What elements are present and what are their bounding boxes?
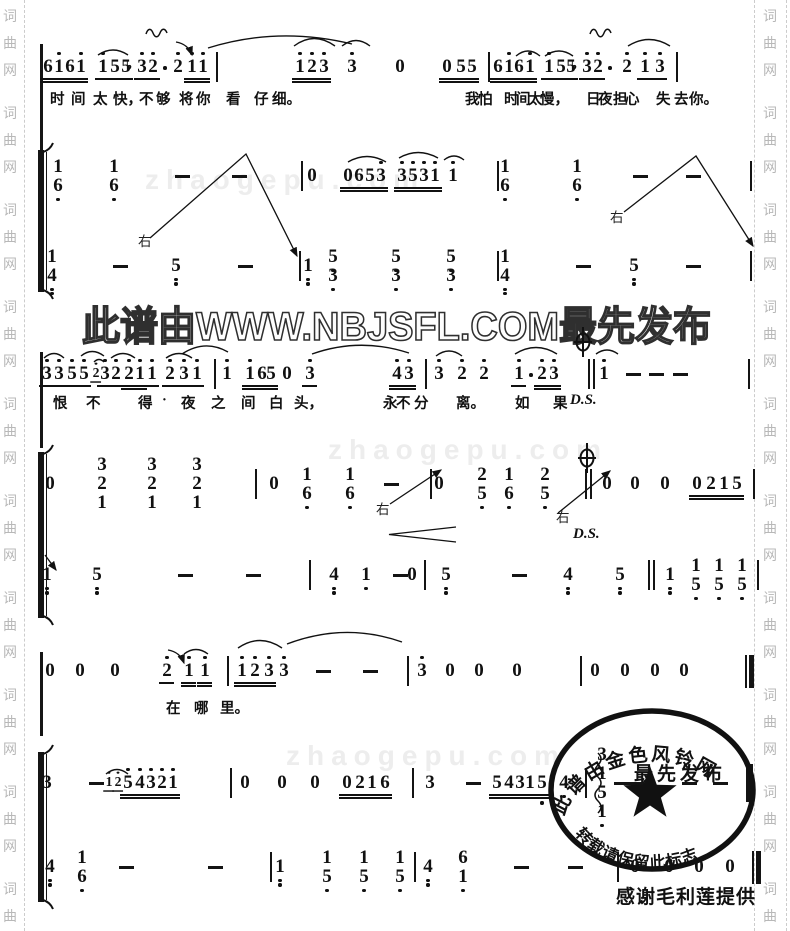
- lyric-text: 太: [93, 88, 108, 109]
- note: 3: [443, 260, 459, 306]
- octave-dot-high: [57, 52, 60, 55]
- note-digit: 1: [94, 493, 110, 512]
- note: 6: [569, 170, 585, 216]
- margin-char: 词: [3, 200, 17, 220]
- octave-dot-high: [57, 359, 60, 362]
- beam-underline: [144, 385, 159, 387]
- margin-char: 词: [763, 6, 777, 26]
- note-digit: 5: [711, 575, 727, 594]
- note-digit: 0: [442, 661, 458, 680]
- note-digit: 1: [144, 493, 160, 512]
- octave-dot-low: [48, 879, 51, 882]
- octave-dot-high: [437, 359, 440, 362]
- lyric-text: 看: [226, 88, 241, 109]
- barline: [227, 656, 229, 686]
- note: 3: [431, 358, 447, 404]
- note-digit: 3: [388, 266, 404, 285]
- note-digit: 5: [356, 867, 372, 886]
- octave-dot-high: [451, 161, 454, 164]
- note-digit: 6: [50, 176, 66, 195]
- note-digit: 3: [261, 661, 277, 680]
- octave-dot-high: [540, 359, 543, 362]
- note: 4: [326, 559, 342, 605]
- lyric-text: 仔: [254, 88, 269, 109]
- octave-dot-low: [503, 288, 506, 291]
- octave-dot-high: [127, 359, 130, 362]
- dash-rest: [686, 175, 701, 178]
- margin-char: 词: [763, 588, 777, 608]
- note: 1: [181, 655, 197, 701]
- note: 3: [414, 655, 430, 701]
- octave-dot-low: [618, 587, 621, 590]
- margin-char: 曲: [763, 324, 777, 344]
- margin-char: 网: [3, 836, 17, 856]
- margin-char: 曲: [3, 615, 17, 635]
- note: 1: [300, 250, 316, 296]
- note-digit: 3: [422, 773, 438, 792]
- margin-char: 曲: [763, 712, 777, 732]
- note: 6: [299, 478, 315, 524]
- octave-dot-low: [717, 597, 720, 600]
- note-digit: 5: [319, 867, 335, 886]
- dash-rest: [119, 866, 134, 869]
- note-digit: 4: [497, 266, 513, 285]
- beam-underline: [546, 388, 561, 390]
- final-barline: [745, 655, 747, 688]
- octave-dot-low: [426, 883, 429, 886]
- beam-underline: [197, 685, 212, 687]
- note-digit: 4: [420, 857, 436, 876]
- dash-rest: [673, 373, 688, 376]
- augmentation-dot: [608, 66, 612, 70]
- flat-sign: ♭: [571, 58, 577, 74]
- note: 2: [159, 655, 175, 701]
- octave-dot-low: [95, 587, 98, 590]
- note: 0: [647, 655, 663, 701]
- note-digit: 0: [587, 661, 603, 680]
- dash-rest: [633, 175, 648, 178]
- barline: [676, 52, 678, 82]
- octave-dot-low: [50, 292, 53, 295]
- beam-underline: [261, 685, 276, 687]
- note-digit: 0: [392, 57, 408, 76]
- octave-dot-high: [138, 768, 141, 771]
- octave-dot-low: [426, 879, 429, 882]
- lyric-text: 果: [553, 392, 568, 413]
- note-digit: 0: [676, 661, 692, 680]
- note: 0: [274, 767, 290, 813]
- crescendo-hairpin: [389, 527, 456, 542]
- margin-char: 曲: [763, 809, 777, 829]
- octave-dot-low: [325, 889, 328, 892]
- note: 1: [596, 358, 612, 404]
- octave-dot-high: [140, 52, 143, 55]
- note: 4: [420, 851, 436, 897]
- note-digit: 2: [145, 57, 161, 76]
- margin-char: 词: [763, 491, 777, 511]
- note: 0: [307, 767, 323, 813]
- note: 0: [617, 655, 633, 701]
- note-digit: 1: [189, 364, 205, 383]
- double-barline: [593, 359, 595, 389]
- octave-dot-high: [400, 161, 403, 164]
- note-digit: 3: [302, 364, 318, 383]
- margin-char: 词: [763, 782, 777, 802]
- beam-underline: [118, 78, 133, 80]
- note: 5: [438, 559, 454, 605]
- note-digit: 0: [42, 474, 58, 493]
- octave-dot-low: [461, 889, 464, 892]
- beam-underline: [189, 385, 204, 387]
- octave-dot-low: [444, 587, 447, 590]
- margin-char: 网: [763, 254, 777, 274]
- beam-underline: [439, 78, 454, 80]
- margin-char: 曲: [763, 227, 777, 247]
- barline: [255, 469, 257, 499]
- margin-char: 曲: [3, 712, 17, 732]
- note-digit: 1: [189, 493, 205, 512]
- note-digit: 0: [647, 661, 663, 680]
- note-digit: 1: [197, 661, 213, 680]
- note-digit: 0: [237, 773, 253, 792]
- note: 3: [325, 260, 341, 306]
- dash-rest: [316, 670, 331, 673]
- note-digit: 0: [266, 474, 282, 493]
- note-digit: 0: [627, 474, 643, 493]
- margin-char: 网: [763, 60, 777, 80]
- octave-dot-high: [411, 161, 414, 164]
- octave-dot-high: [103, 359, 106, 362]
- note: 5: [688, 569, 704, 615]
- note: 5: [626, 250, 642, 296]
- octave-dot-high: [625, 52, 628, 55]
- glissando-lines: [45, 42, 753, 663]
- note-digit: 1: [522, 57, 538, 76]
- octave-dot-low: [540, 801, 543, 804]
- octave-dot-high: [407, 359, 410, 362]
- note-digit: 1: [596, 364, 612, 383]
- dash-rest: [208, 866, 223, 869]
- octave-dot-low: [632, 282, 635, 285]
- note: 0: [72, 655, 88, 701]
- beam-underline: [427, 190, 442, 192]
- note: 5: [356, 861, 372, 907]
- beam-underline: [302, 385, 317, 387]
- note-digit: 1: [144, 364, 160, 383]
- octave-dot-low: [566, 591, 569, 594]
- lyric-text: 恨: [53, 392, 68, 413]
- octave-dot-low: [668, 587, 671, 590]
- lyric-text: 将: [179, 88, 194, 109]
- barline: [757, 560, 759, 590]
- note-digit: 6: [106, 176, 122, 195]
- note-digit: 4: [326, 565, 342, 584]
- margin-char: 词: [3, 394, 17, 414]
- octave-dot-low: [174, 278, 177, 281]
- margin-char: 曲: [3, 324, 17, 344]
- hand-label: 右: [610, 206, 624, 226]
- note: 1: [189, 487, 205, 533]
- dash-rest: [514, 866, 529, 869]
- note-digit: 2: [454, 364, 470, 383]
- octave-dot-low: [362, 889, 365, 892]
- beam-underline: [165, 794, 180, 796]
- octave-dot-low: [394, 288, 397, 291]
- margin-char: 词: [3, 103, 17, 123]
- note-digit: 3: [316, 57, 332, 76]
- note-digit: 5: [612, 565, 628, 584]
- margin-char: 曲: [3, 518, 17, 538]
- dash-rest: [466, 782, 481, 785]
- barline: [425, 359, 427, 389]
- beam-underline: [263, 385, 278, 387]
- beam-underline: [373, 187, 388, 189]
- lyric-text: 怕: [478, 88, 493, 109]
- note-digit: 6: [569, 176, 585, 195]
- dash-rest: [576, 265, 591, 268]
- octave-dot-high: [433, 161, 436, 164]
- note-digit: 1: [219, 364, 235, 383]
- note-digit: 4: [44, 266, 60, 285]
- system2-brace: [38, 150, 44, 292]
- note: 0: [509, 655, 525, 701]
- beam-underline: [652, 78, 667, 80]
- octave-dot-low: [507, 506, 510, 509]
- beam-underline: [729, 498, 744, 500]
- note: 1: [94, 487, 110, 533]
- double-barline: [588, 359, 590, 389]
- margin-char: 网: [3, 351, 17, 371]
- dash-rest: [246, 574, 261, 577]
- lyric-text: 在: [166, 697, 181, 718]
- note: 1: [427, 160, 443, 206]
- lyric-text: 得: [138, 392, 153, 413]
- note: 0: [676, 655, 692, 701]
- flat-sign: ♭: [126, 58, 132, 74]
- note-digit: 1: [511, 364, 527, 383]
- margin-char: 词: [763, 200, 777, 220]
- lyric-text: 去: [674, 88, 689, 109]
- note-digit: 0: [431, 474, 447, 493]
- lyric-text: 间: [241, 392, 256, 413]
- octave-dot-low: [398, 889, 401, 892]
- beam-underline: [546, 385, 561, 387]
- margin-char: 词: [3, 6, 17, 26]
- margin-char: 曲: [763, 518, 777, 538]
- beam-underline: [689, 498, 704, 500]
- note-digit: 1: [637, 57, 653, 76]
- dash-rest: [232, 175, 247, 178]
- note-digit: 0: [599, 474, 615, 493]
- octave-dot-high: [658, 52, 661, 55]
- octave-dot-high: [126, 768, 129, 771]
- octave-dot-low: [80, 889, 83, 892]
- beam-underline: [401, 385, 416, 387]
- note-digit: 1: [165, 773, 181, 792]
- beam-underline: [247, 682, 262, 684]
- note: 6: [342, 478, 358, 524]
- note: 5: [474, 478, 490, 524]
- octave-dot-low: [632, 278, 635, 281]
- note: 0: [442, 655, 458, 701]
- note-digit: 1: [445, 166, 461, 185]
- hand-label: 右: [138, 230, 152, 250]
- margin-char: 曲: [3, 227, 17, 247]
- note-digit: 3: [401, 364, 417, 383]
- note: 3: [316, 51, 332, 97]
- note: 1: [445, 160, 461, 206]
- lyric-text: 你: [196, 88, 211, 109]
- note: 3: [422, 767, 438, 813]
- dash-rest: [178, 574, 193, 577]
- margin-char: 网: [3, 642, 17, 662]
- note-digit: 2: [159, 661, 175, 680]
- margin-char: 网: [3, 739, 17, 759]
- octave-dot-high: [165, 656, 168, 659]
- octave-dot-high: [70, 359, 73, 362]
- octave-dot-low: [444, 591, 447, 594]
- octave-dot-high: [203, 656, 206, 659]
- lyric-text: 不: [396, 392, 411, 413]
- note-digit: 1: [300, 256, 316, 275]
- lyric-text: 夜: [598, 88, 613, 109]
- note: 3: [344, 51, 360, 97]
- octave-dot-high: [114, 359, 117, 362]
- note-digit: 5: [89, 565, 105, 584]
- note: 5: [89, 559, 105, 605]
- hand-label: 右: [376, 498, 390, 518]
- note-digit: 1: [358, 565, 374, 584]
- beam-underline: [159, 682, 174, 684]
- note-digit: 1: [73, 57, 89, 76]
- lyric-text: 间: [71, 88, 86, 109]
- barline: [412, 768, 414, 798]
- octave-dot-high: [602, 359, 605, 362]
- margin-char: 网: [3, 157, 17, 177]
- note-digit: 6: [501, 484, 517, 503]
- note: 0: [587, 655, 603, 701]
- margin-char: 网: [763, 836, 777, 856]
- note-digit: 2: [476, 364, 492, 383]
- lyric-text: 不: [139, 88, 154, 109]
- margin-char: 词: [3, 297, 17, 317]
- beam-underline: [181, 682, 196, 684]
- octave-dot-low: [278, 883, 281, 886]
- octave-dot-high: [267, 656, 270, 659]
- margin-char: 词: [763, 394, 777, 414]
- octave-dot-high: [528, 52, 531, 55]
- dash-rest: [384, 483, 399, 486]
- octave-dot-high: [643, 52, 646, 55]
- octave-dot-high: [45, 359, 48, 362]
- note-digit: 5: [626, 256, 642, 275]
- note-digit: 4: [560, 565, 576, 584]
- note-digit: 3: [443, 266, 459, 285]
- beam-underline: [76, 385, 91, 387]
- octave-dot-high: [547, 52, 550, 55]
- margin-char: 网: [763, 448, 777, 468]
- stamp-bottom-text: 转载请保留此标志: [572, 824, 701, 872]
- sheet-music-page: 词曲网词曲网词曲网词曲网词曲网词曲网词曲网词曲网词曲网词曲网词曲网词曲网词曲网词…: [0, 0, 790, 931]
- octave-dot-high: [182, 359, 185, 362]
- note: 0: [431, 468, 447, 514]
- beam-underline: [263, 388, 278, 390]
- note: 0: [392, 51, 408, 97]
- barline: [753, 469, 755, 499]
- octave-dot-high: [149, 768, 152, 771]
- lyric-text: 时: [50, 88, 65, 109]
- beam-underline: [729, 495, 744, 497]
- lyric-text: 快，: [113, 88, 142, 109]
- note: 4: [560, 559, 576, 605]
- dash-rest: [175, 175, 190, 178]
- lyric-text: 失: [656, 88, 671, 109]
- octave-dot-high: [248, 359, 251, 362]
- note-digit: 0: [279, 364, 295, 383]
- note: 0: [107, 655, 123, 701]
- octave-dot-high: [596, 52, 599, 55]
- margin-char: 曲: [763, 421, 777, 441]
- octave-dot-low: [174, 282, 177, 285]
- margin-char: 网: [763, 157, 777, 177]
- octave-dot-low: [306, 282, 309, 285]
- note-digit: 5: [392, 867, 408, 886]
- dash-rest: [512, 574, 527, 577]
- note-digit: 3: [276, 661, 292, 680]
- octave-dot-high: [201, 52, 204, 55]
- note-digit: 4: [42, 857, 58, 876]
- octave-dot-low: [305, 506, 308, 509]
- note: 6: [50, 170, 66, 216]
- note-digit: 0: [42, 661, 58, 680]
- margin-char: 网: [3, 60, 17, 80]
- note: 5: [168, 250, 184, 296]
- lyric-text: 之: [211, 392, 226, 413]
- note: 6: [501, 478, 517, 524]
- margin-char: 词: [763, 103, 777, 123]
- barline: [216, 52, 218, 82]
- margin-char: 词: [763, 685, 777, 705]
- dash-rest: [113, 265, 128, 268]
- dash-rest: [649, 373, 664, 376]
- octave-dot-high: [517, 359, 520, 362]
- octave-dot-low: [566, 587, 569, 590]
- octave-dot-low: [543, 506, 546, 509]
- margin-char: 词: [763, 879, 777, 899]
- barline: [230, 768, 232, 798]
- beam-underline: [439, 81, 454, 83]
- octave-dot-low: [618, 591, 621, 594]
- octave-dot-low: [364, 587, 367, 590]
- note-digit: 1: [427, 166, 443, 185]
- note: 1: [144, 487, 160, 533]
- beam-underline: [316, 78, 331, 80]
- beam-underline: [197, 682, 212, 684]
- lyric-text: 头，: [294, 392, 323, 413]
- beam-underline: [464, 81, 479, 83]
- lyric-text: 慢，: [540, 88, 569, 109]
- octave-dot-high: [101, 52, 104, 55]
- beam-underline: [689, 495, 704, 497]
- note: 5: [319, 861, 335, 907]
- lyric-text: 不: [86, 392, 101, 413]
- beam-underline: [427, 187, 442, 189]
- note-digit: 1: [195, 57, 211, 76]
- beam-underline: [247, 685, 262, 687]
- double-barline: [648, 560, 650, 590]
- margin-char: 曲: [3, 906, 17, 926]
- octave-dot-low: [45, 587, 48, 590]
